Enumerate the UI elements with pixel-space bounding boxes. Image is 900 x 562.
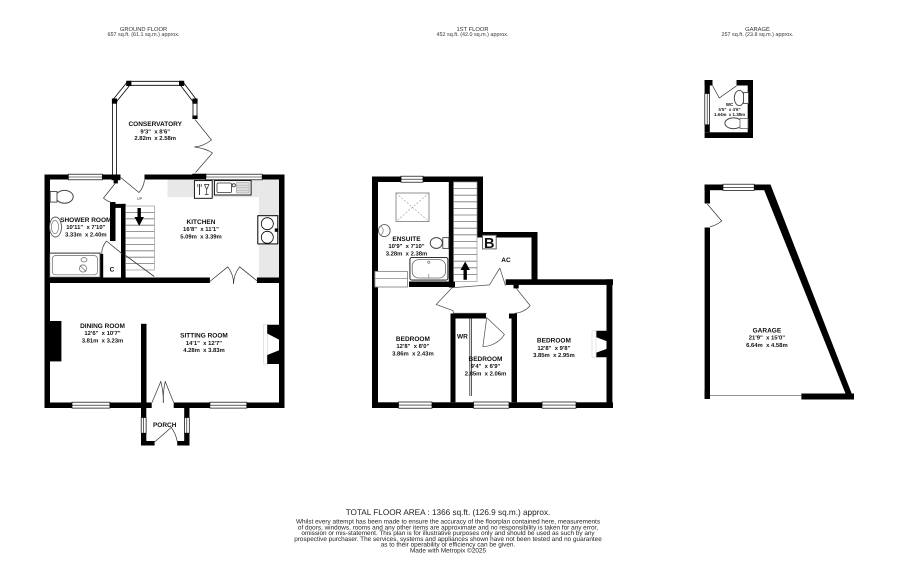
svg-text:1.64m x 1.38m: 1.64m x 1.38m [714, 112, 745, 117]
svg-text:452 sq.ft. (42.0 sq.m.) approx: 452 sq.ft. (42.0 sq.m.) approx. [437, 32, 509, 38]
svg-text:3.81m x 3.23m: 3.81m x 3.23m [82, 337, 124, 344]
svg-text:AC: AC [501, 257, 511, 264]
svg-text:ENSUITE: ENSUITE [392, 236, 421, 243]
svg-text:2.85m x 2.06m: 2.85m x 2.06m [465, 370, 507, 377]
svg-text:GARAGE: GARAGE [753, 328, 782, 335]
svg-text:14'1" x 12'7": 14'1" x 12'7" [186, 340, 222, 347]
svg-text:2.82m x 2.58m: 2.82m x 2.58m [134, 135, 176, 142]
svg-text:12'8" x 8'0": 12'8" x 8'0" [396, 343, 429, 350]
svg-text:B: B [484, 236, 494, 252]
svg-text:9'3" x 8'6": 9'3" x 8'6" [140, 128, 170, 135]
svg-text:4.28m x 3.83m: 4.28m x 3.83m [183, 347, 225, 354]
svg-text:C: C [110, 267, 115, 274]
svg-text:657 sq.ft. (61.1 sq.m.) approx: 657 sq.ft. (61.1 sq.m.) approx. [108, 32, 180, 38]
svg-text:16'8" x 11'1": 16'8" x 11'1" [183, 226, 219, 233]
svg-text:257 sq.ft. (23.8 sq.m.) approx: 257 sq.ft. (23.8 sq.m.) approx. [722, 32, 794, 38]
svg-text:SITTING ROOM: SITTING ROOM [180, 333, 228, 340]
svg-text:CONSERVATORY: CONSERVATORY [128, 121, 182, 128]
svg-text:BEDROOM: BEDROOM [537, 338, 571, 345]
svg-text:21'9" x 15'0": 21'9" x 15'0" [749, 335, 785, 342]
svg-text:KITCHEN: KITCHEN [187, 219, 216, 226]
svg-text:WR: WR [457, 334, 468, 341]
svg-text:6.64m x 4.58m: 6.64m x 4.58m [746, 342, 788, 349]
svg-text:3.28m x 2.38m: 3.28m x 2.38m [386, 250, 428, 257]
svg-text:Made with Metropix ©2025: Made with Metropix ©2025 [410, 547, 487, 554]
svg-text:12'8" x 9'8": 12'8" x 9'8" [537, 345, 570, 352]
svg-text:TOTAL FLOOR AREA : 1366 sq.ft.: TOTAL FLOOR AREA : 1366 sq.ft. (126.9 sq… [346, 508, 551, 517]
svg-text:5.09m x 3.39m: 5.09m x 3.39m [180, 233, 222, 240]
svg-text:SHOWER ROOM: SHOWER ROOM [60, 217, 111, 224]
svg-text:10'9" x 7'10": 10'9" x 7'10" [388, 243, 424, 250]
svg-text:3.85m x 2.95m: 3.85m x 2.95m [533, 352, 575, 359]
svg-text:BEDROOM: BEDROOM [469, 356, 503, 363]
svg-text:BEDROOM: BEDROOM [396, 336, 430, 343]
svg-text:3.33m x 2.40m: 3.33m x 2.40m [65, 231, 107, 238]
svg-text:DINING ROOM: DINING ROOM [80, 323, 125, 330]
svg-text:3.86m x 2.43m: 3.86m x 2.43m [392, 350, 434, 357]
svg-text:9'4" x 6'9": 9'4" x 6'9" [471, 363, 501, 370]
svg-text:PORCH: PORCH [153, 422, 177, 429]
svg-text:10'11" x 7'10": 10'11" x 7'10" [66, 224, 105, 231]
svg-text:UP: UP [137, 196, 143, 201]
svg-text:12'6" x 10'7": 12'6" x 10'7" [84, 330, 120, 337]
